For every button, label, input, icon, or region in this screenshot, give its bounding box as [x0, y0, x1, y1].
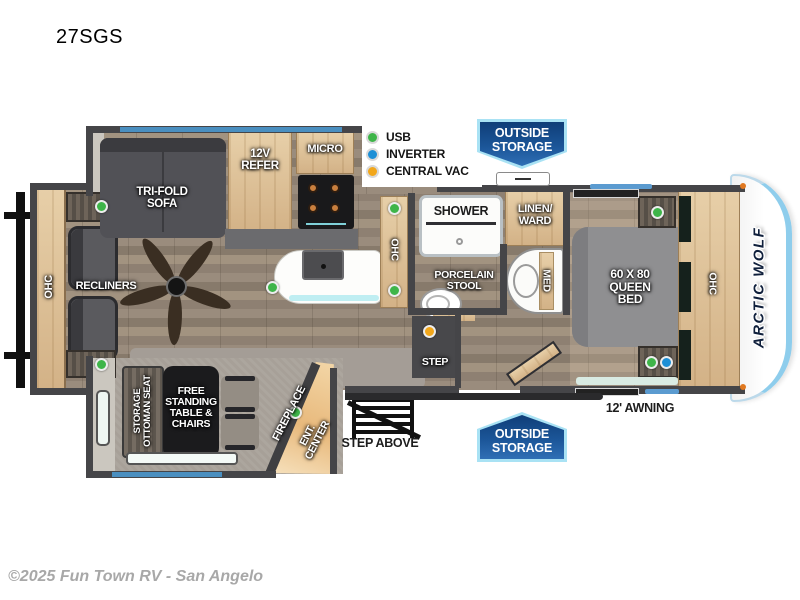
kitchen-counter [225, 229, 358, 249]
bedroom-window-top [573, 189, 639, 198]
slide-left-wall [86, 126, 93, 196]
legend-label: INVERTER [386, 147, 445, 161]
page-title: 27SGS [56, 26, 123, 49]
table-label: FREE STANDING TABLE & CHAIRS [156, 386, 226, 431]
recliner-1-back [71, 229, 83, 287]
usb-indicator [95, 200, 108, 213]
bottom-wall-left [30, 388, 92, 395]
kitchen-ohc-label: OHC [388, 220, 399, 280]
linen-label: LINEN/ WARD [505, 204, 565, 227]
legend-label: USB [386, 130, 411, 144]
recliner-2-back [71, 299, 83, 357]
vanity-sink [513, 264, 539, 298]
copyright-footer: ©2025 Fun Town RV - San Angelo [8, 568, 263, 586]
bath-vanity [506, 248, 564, 314]
badge-text: OUTSIDE STORAGE [477, 127, 567, 155]
badge-text: OUTSIDE STORAGE [477, 428, 567, 456]
stove-controls [306, 223, 346, 225]
rear-ohc-label: OHC [44, 247, 56, 327]
interior-step [412, 316, 457, 378]
rear-wall [30, 183, 37, 395]
exterior-storage-door [496, 172, 550, 186]
usb-legend-icon [366, 131, 379, 144]
window-accent [590, 184, 652, 189]
burner-icon [330, 203, 340, 213]
dining-chair [221, 414, 259, 450]
window-accent [645, 389, 679, 394]
legend-label: CENTRAL VAC [386, 164, 469, 178]
outside-storage-badge-bottom: OUTSIDE STORAGE [477, 412, 567, 462]
brand-logo: ARCTIC WOLF [751, 188, 768, 388]
faucet-icon [321, 264, 326, 269]
refrigerator [228, 132, 292, 232]
door-handle-icon [515, 178, 531, 180]
kitchen-sink [302, 250, 344, 280]
shower-label: SHOWER [419, 205, 503, 218]
recliners-label: RECLINERS [62, 281, 150, 293]
bath-wall-bottom [408, 308, 507, 315]
legend-row-usb: USB [366, 130, 478, 144]
step-label: STEP [410, 357, 460, 368]
marker-light-icon [740, 183, 746, 189]
outside-storage-badge-top: OUTSIDE STORAGE [477, 119, 567, 169]
top-wall-left [30, 183, 92, 190]
central-vac-indicator [423, 325, 436, 338]
legend-row-central-vac: CENTRAL VAC [366, 164, 478, 178]
inverter-indicator [660, 356, 673, 369]
awning-label: 12' AWNING [585, 402, 695, 415]
med-label: MED [540, 256, 551, 306]
stool-label: PORCELAIN STOOL [426, 270, 502, 292]
step-above-label: STEP ABOVE [330, 437, 430, 450]
bedroom-ohc-label: OHC [706, 254, 717, 314]
wardrobe-panel [679, 196, 691, 242]
burner-icon [330, 183, 340, 193]
marker-light-icon [740, 384, 746, 390]
awning-bar [345, 393, 603, 400]
usb-indicator [388, 284, 401, 297]
burner-icon [308, 203, 318, 213]
island-accent [289, 295, 379, 301]
floorplan-page: 27SGS ©2025 Fun Town RV - San Angelo OHC… [0, 0, 800, 600]
window-accent [112, 472, 222, 477]
stove [298, 175, 354, 229]
bath-wall-left [408, 193, 415, 315]
chair-arm [225, 414, 255, 419]
ottoman-label: STORAGE OTTOMAN SEAT [133, 359, 153, 463]
usb-indicator [645, 356, 658, 369]
chair-arm [225, 376, 255, 381]
slide-window [120, 127, 342, 132]
shower-drain-icon [456, 238, 463, 245]
usb-indicator [266, 281, 279, 294]
sofa-label: TRI-FOLD SOFA [122, 186, 202, 210]
bedroom-window-sill [576, 377, 678, 385]
wardrobe-panel [679, 262, 691, 312]
rear-ladder-arm-bottom [4, 352, 32, 359]
chair-arm [225, 445, 255, 450]
central-vac-legend-icon [366, 165, 379, 178]
rear-ladder-arm-top [4, 212, 32, 219]
slide-bottom-left-wall [86, 356, 93, 478]
legend-row-inverter: INVERTER [366, 147, 478, 161]
dining-chair [221, 376, 259, 412]
step-wall [455, 315, 461, 388]
ceiling-fan-hub [166, 276, 187, 297]
bed-label: 60 X 80 QUEEN BED [585, 268, 675, 306]
burner-icon [308, 183, 318, 193]
refer-label: 12V REFER [228, 148, 292, 172]
legend: USB INVERTER CENTRAL VAC [362, 121, 482, 187]
usb-indicator [388, 202, 401, 215]
inverter-legend-icon [366, 148, 379, 161]
shower-door-track [426, 222, 496, 225]
micro-label: MICRO [296, 144, 354, 156]
wardrobe-panel [679, 330, 691, 380]
sofa-back [100, 138, 226, 152]
side-window [96, 390, 110, 446]
usb-indicator [651, 206, 664, 219]
usb-indicator [95, 358, 108, 371]
chair-arm [225, 407, 255, 412]
